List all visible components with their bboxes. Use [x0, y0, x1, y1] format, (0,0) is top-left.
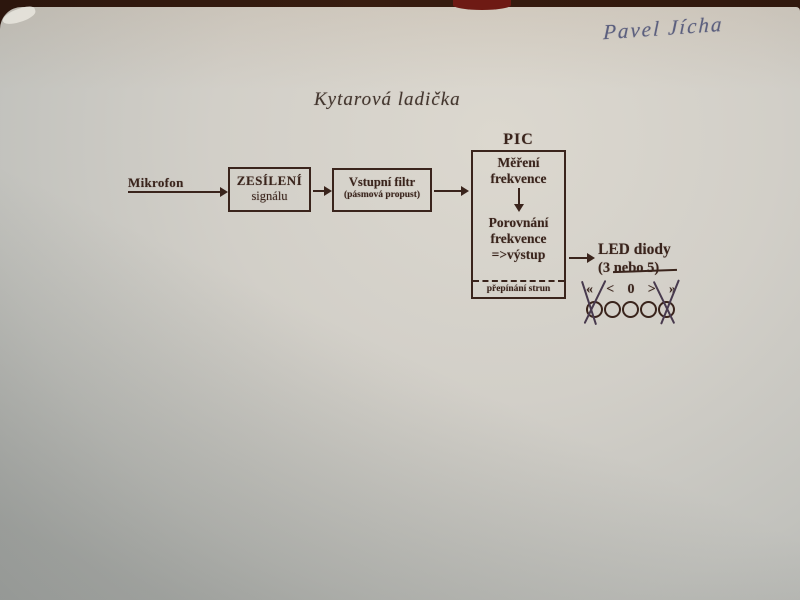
pic-compare-line3: =>výstup	[473, 247, 564, 263]
pic-box: Měření frekvence Porovnání frekvence =>v…	[471, 150, 566, 299]
mikrofon-arrow-line	[128, 191, 223, 193]
amplifier-box-line2: signálu	[230, 189, 309, 204]
pic-measure-line2: frekvence	[473, 171, 564, 187]
led-count-struck-text: nebo 5	[614, 260, 655, 276]
led-count-suffix: )	[654, 260, 659, 276]
photo-background: Pavel Jícha Kytarová ladička Mikrofon ZE…	[0, 0, 800, 600]
pic-measure-line1: Měření	[473, 155, 564, 171]
filter-box: Vstupní filtr (pásmová propust)	[332, 168, 432, 212]
led-circles-row	[586, 301, 675, 318]
down-arrow-head	[514, 204, 524, 212]
mikrofon-label: Mikrofon	[128, 175, 184, 191]
arrowhead-pic-to-led-icon	[587, 253, 595, 263]
led-circle-2	[604, 301, 621, 318]
pic-label: PIC	[471, 131, 566, 149]
amplifier-box-line1: ZESÍLENÍ	[230, 173, 309, 189]
arrowhead-amp-to-filter-icon	[324, 186, 332, 196]
symbol-zero: 0	[627, 282, 634, 298]
filter-box-line2: (pásmová propust)	[334, 190, 430, 200]
pic-footer-label: přepínání strun	[473, 282, 564, 297]
pic-compare-line2: frekvence	[473, 231, 564, 247]
symbol-left: <	[606, 282, 614, 298]
led-title: LED diody	[598, 241, 671, 259]
filter-box-line1: Vstupní filtr	[334, 175, 430, 190]
down-arrow-icon	[473, 188, 564, 214]
led-count-prefix: (3	[598, 260, 610, 276]
led-count-label: (3 nebo 5)	[598, 260, 659, 277]
pic-compare-line1: Porovnání	[473, 215, 564, 231]
arrowhead-filter-to-pic-icon	[461, 186, 469, 196]
down-arrow-stem	[518, 188, 520, 204]
amplifier-box: ZESÍLENÍ signálu	[228, 167, 311, 212]
led-circle-3	[622, 301, 639, 318]
red-object-at-table-edge	[453, 0, 511, 10]
led-circle-4	[640, 301, 657, 318]
arrow-line-filter-to-pic	[434, 190, 464, 192]
mikrofon-arrowhead-icon	[220, 187, 228, 197]
diagram-title: Kytarová ladička	[314, 89, 461, 111]
